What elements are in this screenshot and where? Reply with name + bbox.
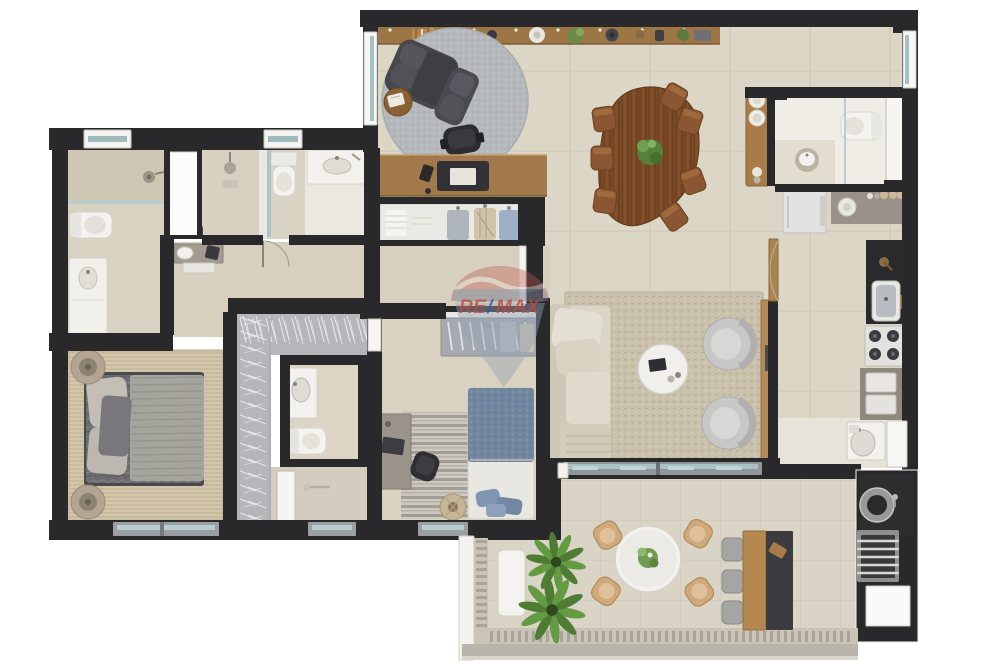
svg-text:MAX: MAX [496,297,541,318]
svg-text:RE: RE [459,297,487,318]
